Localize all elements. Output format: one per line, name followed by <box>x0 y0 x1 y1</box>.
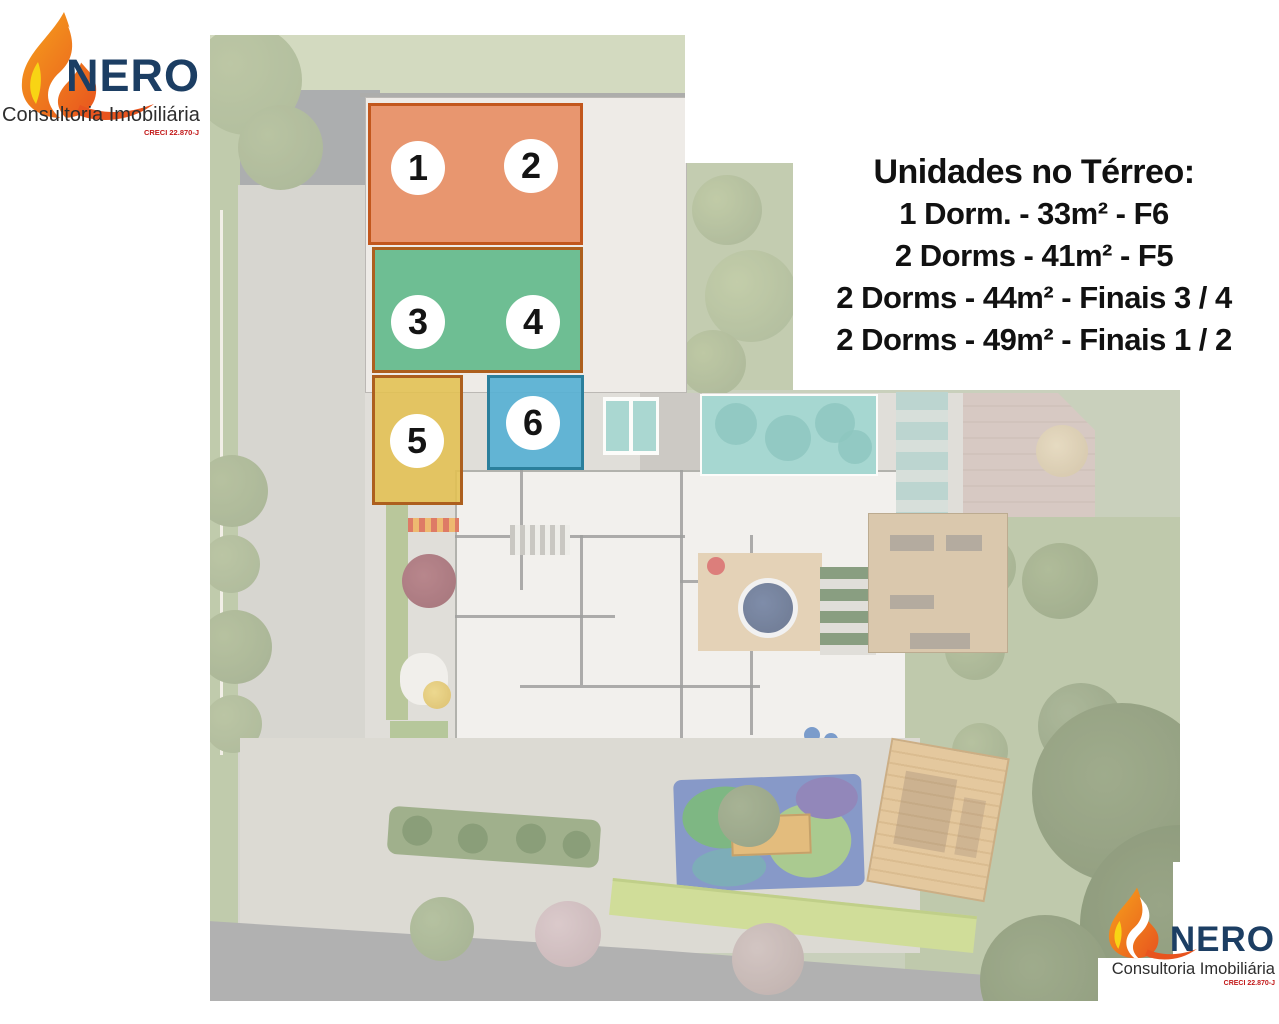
unit-marker-2: 2 <box>504 139 558 193</box>
unit-marker-6: 6 <box>506 396 560 450</box>
brand-tagline: Consultoria Imobiliária <box>2 104 200 127</box>
unit-number: 3 <box>408 301 428 343</box>
info-line-1: 1 Dorm. - 33m² - F6 <box>818 193 1250 235</box>
brand-license: CRECI 22.870-J <box>1155 980 1275 987</box>
info-line-3: 2 Dorms - 44m² - Finais 3 / 4 <box>818 277 1250 319</box>
brand-license: CRECI 22.870-J <box>79 128 199 137</box>
unit-marker-1: 1 <box>391 141 445 195</box>
unit-number: 5 <box>407 420 427 462</box>
units-info-panel: Unidades no Térreo: 1 Dorm. - 33m² - F6 … <box>818 151 1250 361</box>
unit-marker-5: 5 <box>390 414 444 468</box>
unit-number: 6 <box>523 402 543 444</box>
nero-logo-bottom: NERO Consultoria Imobiliária CRECI 22.87… <box>1096 878 1279 1002</box>
info-line-4: 2 Dorms - 49m² - Finais 1 / 2 <box>818 319 1250 361</box>
brand-name: NERO <box>1170 920 1275 960</box>
unit-marker-4: 4 <box>506 295 560 349</box>
info-line-2: 2 Dorms - 41m² - F5 <box>818 235 1250 277</box>
info-title: Unidades no Térreo: <box>818 151 1250 193</box>
nero-logo-top: NERO Consultoria Imobiliária CRECI 22.87… <box>2 6 208 141</box>
unit-number: 4 <box>523 301 543 343</box>
unit-number: 2 <box>521 145 541 187</box>
unit-marker-3: 3 <box>391 295 445 349</box>
unit-number: 1 <box>408 147 428 189</box>
brand-tagline: Consultoria Imobiliária <box>1112 960 1275 979</box>
brand-name: NERO <box>66 50 200 102</box>
